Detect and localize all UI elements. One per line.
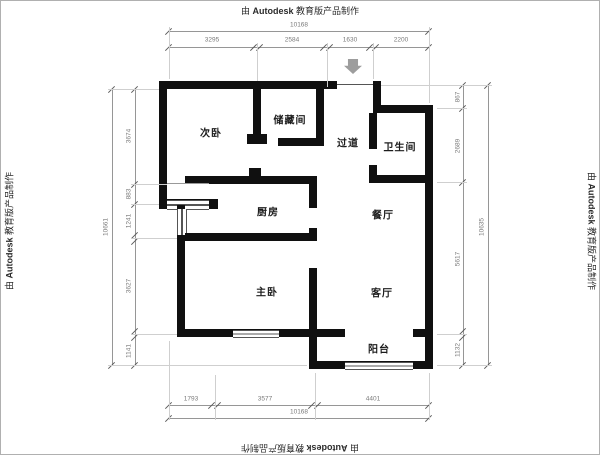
- wall-kitchen-bottom: [185, 233, 317, 241]
- dim-right-seg-4: 1132: [455, 343, 462, 357]
- room-label-dining: 餐厅: [372, 207, 394, 222]
- room-label-kitchen: 厨房: [257, 204, 279, 219]
- window-balcony: [345, 362, 413, 370]
- room-label-master-bedroom: 主卧: [256, 284, 278, 299]
- room-label-storage: 储藏间: [274, 112, 307, 127]
- dim-top-seg-4: 2200: [394, 37, 408, 44]
- extension-line: [437, 365, 492, 366]
- room-label-bathroom: 卫生间: [384, 139, 417, 154]
- extension-line: [437, 334, 467, 335]
- wall-kitchen-top-stub: [249, 168, 261, 176]
- room-label-balcony: 阳台: [368, 341, 390, 356]
- extension-line: [429, 27, 430, 103]
- wall-kitchen-right-upper: [309, 176, 317, 208]
- wall-balcony-divider-left: [317, 329, 345, 337]
- wall-bedroom-storage-divider: [253, 89, 261, 136]
- wall-bathroom-left-upper: [369, 113, 377, 149]
- window-master-bedroom: [233, 330, 279, 338]
- dim-left-seg-5: 1141: [126, 344, 133, 358]
- dim-line-bottom-segments: [169, 405, 429, 406]
- extension-line: [169, 341, 170, 420]
- extension-line: [215, 375, 216, 420]
- window-secondary-bedroom: [167, 200, 209, 210]
- bay-sill-line: [167, 183, 209, 184]
- dim-line-top-total: [169, 31, 429, 32]
- dim-top-seg-1: 3295: [205, 37, 219, 44]
- extension-line: [327, 43, 328, 87]
- dim-right-seg-2: 2689: [455, 139, 462, 153]
- extension-line: [131, 204, 159, 205]
- watermark-brand: Autodesk: [252, 6, 293, 16]
- wall-top-left: [159, 81, 337, 89]
- watermark-top: 由 Autodesk 教育版产品制作: [241, 4, 359, 17]
- window-left-lower: [177, 209, 187, 235]
- dim-line-right-total: [488, 85, 489, 365]
- dim-line-bottom-total: [169, 418, 429, 419]
- dim-right-seg-1: 867: [455, 92, 462, 103]
- wall-divider-stub: [247, 134, 267, 144]
- dim-bottom-seg-2: 3577: [258, 396, 272, 403]
- extension-line: [169, 27, 170, 79]
- dim-line-right-segments: [463, 85, 464, 365]
- extension-line: [108, 365, 307, 366]
- extension-line: [429, 373, 430, 420]
- wall-bathroom-bottom: [369, 175, 433, 183]
- extension-line: [437, 182, 467, 183]
- room-label-hallway: 过道: [337, 135, 359, 150]
- wall-top-right: [373, 105, 433, 113]
- room-label-secondary-bedroom: 次卧: [200, 125, 222, 140]
- extension-line: [131, 184, 167, 185]
- wall-balcony-divider-right: [413, 329, 433, 337]
- dim-top-total: 10168: [290, 22, 308, 29]
- watermark-left: 由 Autodesk 教育版产品制作: [3, 172, 16, 290]
- watermark-bottom: 由 Autodesk 教育版产品制作: [241, 442, 359, 455]
- extension-line: [381, 85, 492, 86]
- dim-top-seg-2: 2584: [285, 37, 299, 44]
- dim-right-seg-3: 5617: [455, 252, 462, 266]
- dim-line-left-total: [112, 89, 113, 365]
- dim-line-top-segments: [169, 47, 429, 48]
- dim-bottom-seg-1: 1793: [184, 396, 198, 403]
- watermark-prefix: 由: [241, 6, 250, 16]
- dim-bottom-total: 10168: [290, 409, 308, 416]
- entrance-door-line: [337, 84, 373, 85]
- floorplan-canvas: 由 Autodesk 教育版产品制作 由 Autodesk 教育版产品制作 由 …: [0, 0, 600, 455]
- dim-left-seg-4: 3627: [126, 279, 133, 293]
- dim-left-total: 10661: [103, 218, 110, 236]
- dim-right-total: 10635: [479, 218, 486, 236]
- extension-line: [131, 334, 177, 335]
- dim-line-left-segments: [135, 89, 136, 365]
- extension-line: [257, 43, 258, 81]
- dim-left-seg-2: 883: [126, 189, 133, 200]
- watermark-right: 由 Autodesk 教育版产品制作: [586, 172, 599, 290]
- entrance-arrow-icon: [344, 59, 362, 74]
- dim-bottom-seg-3: 4401: [366, 396, 380, 403]
- wall-master-right: [309, 268, 317, 369]
- room-label-living: 客厅: [371, 285, 393, 300]
- extension-line: [108, 89, 159, 90]
- extension-line: [373, 43, 374, 79]
- extension-line: [437, 108, 467, 109]
- watermark-suffix: 教育版产品制作: [296, 6, 359, 16]
- dim-top-seg-3: 1630: [343, 37, 357, 44]
- wall-left-upper: [159, 81, 167, 207]
- dim-left-seg-1: 3674: [126, 129, 133, 143]
- wall-storage-right: [316, 89, 324, 146]
- dim-left-seg-3: 1241: [126, 214, 133, 228]
- extension-line: [315, 373, 316, 420]
- extension-line: [131, 238, 177, 239]
